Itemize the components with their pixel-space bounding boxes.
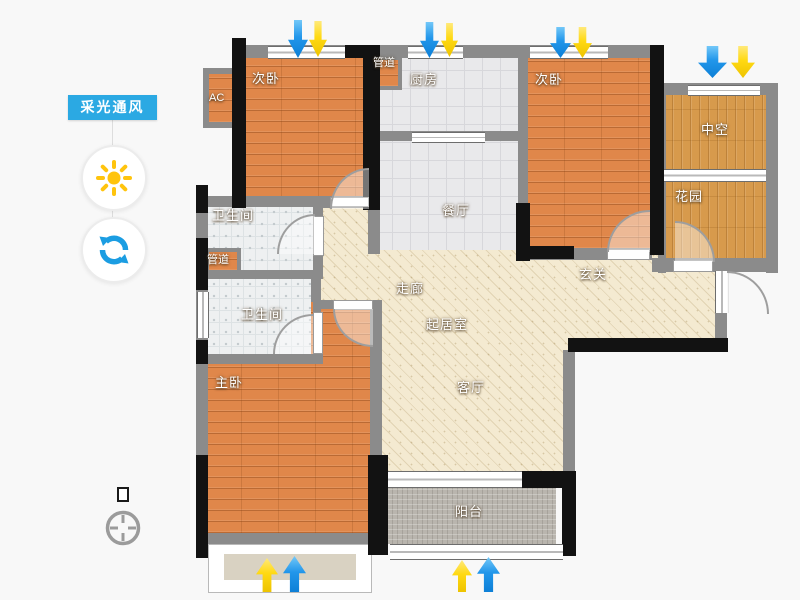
room-label-dining: 餐厅	[442, 200, 470, 219]
window	[268, 46, 345, 59]
wall-segment	[205, 270, 323, 279]
window-pass-through	[412, 132, 485, 143]
room-label-bath-lower: 卫生间	[241, 304, 283, 323]
window	[664, 169, 766, 182]
room-label-bath-upper: 卫生间	[212, 205, 254, 224]
light-arrow-yellow-down	[731, 46, 755, 78]
wall-segment	[715, 313, 727, 340]
window	[530, 46, 608, 59]
room-label-balcony: 阳台	[455, 501, 483, 520]
room-label-inner-living: 起居室	[426, 314, 468, 333]
room-label-living: 客厅	[457, 377, 485, 396]
balcony-railing	[390, 544, 563, 560]
window	[688, 85, 760, 96]
room-label-kitchen: 厨房	[410, 69, 438, 88]
wall-segment-black	[196, 455, 208, 558]
room-label-duct-top: 管道	[373, 54, 395, 70]
wall-segment-black	[562, 471, 576, 556]
compass-icon	[98, 486, 150, 558]
wall-segment-black	[196, 340, 208, 364]
vent-arrow-blue-down	[698, 46, 727, 78]
wall-segment	[766, 83, 778, 273]
light-arrow-yellow-up	[452, 560, 472, 592]
balcony-sliding-window	[388, 471, 522, 488]
wall-segment-black	[516, 246, 574, 259]
room-label-bedroom-top-right: 次卧	[535, 69, 563, 88]
room-label-master-bedroom: 主卧	[215, 372, 243, 391]
room-label-void: 中空	[701, 119, 729, 138]
window	[408, 46, 463, 59]
rotate-button[interactable]	[81, 217, 147, 283]
wall-segment	[563, 350, 575, 476]
lighting-ventilation-panel: 采光通风	[0, 0, 170, 300]
outside-mask	[575, 352, 800, 482]
rotate-icon	[96, 232, 132, 268]
vent-arrow-blue-up	[477, 557, 500, 592]
window	[197, 292, 209, 338]
wall-segment	[203, 354, 323, 364]
wall-segment-black	[568, 338, 728, 352]
wall-segment	[368, 208, 380, 254]
wall-segment	[652, 258, 778, 272]
room-label-bedroom-top-left: 次卧	[252, 68, 280, 87]
floorplan-page: { "sidebar": { "toggle_label": "采光通风", "…	[0, 0, 800, 600]
door-threshold	[313, 312, 323, 354]
wall-segment-black	[232, 38, 246, 208]
sun-icon	[95, 159, 133, 197]
room-label-garden: 花园	[675, 186, 703, 205]
wall-segment-black	[650, 45, 664, 255]
wall-segment-black	[368, 455, 388, 555]
room-label-duct-middle: 管道	[207, 251, 229, 267]
room-label-ac: AC	[209, 92, 224, 104]
wall-segment	[205, 533, 372, 544]
entry-door-arc	[727, 271, 769, 314]
sun-button[interactable]	[81, 145, 147, 211]
lighting-ventilation-toggle[interactable]: 采光通风	[68, 95, 157, 120]
room-label-corridor: 走廊	[396, 278, 424, 297]
wall-segment-black	[196, 185, 208, 213]
wall-segment	[311, 272, 321, 302]
room-label-entry-hall: 玄关	[579, 264, 607, 283]
